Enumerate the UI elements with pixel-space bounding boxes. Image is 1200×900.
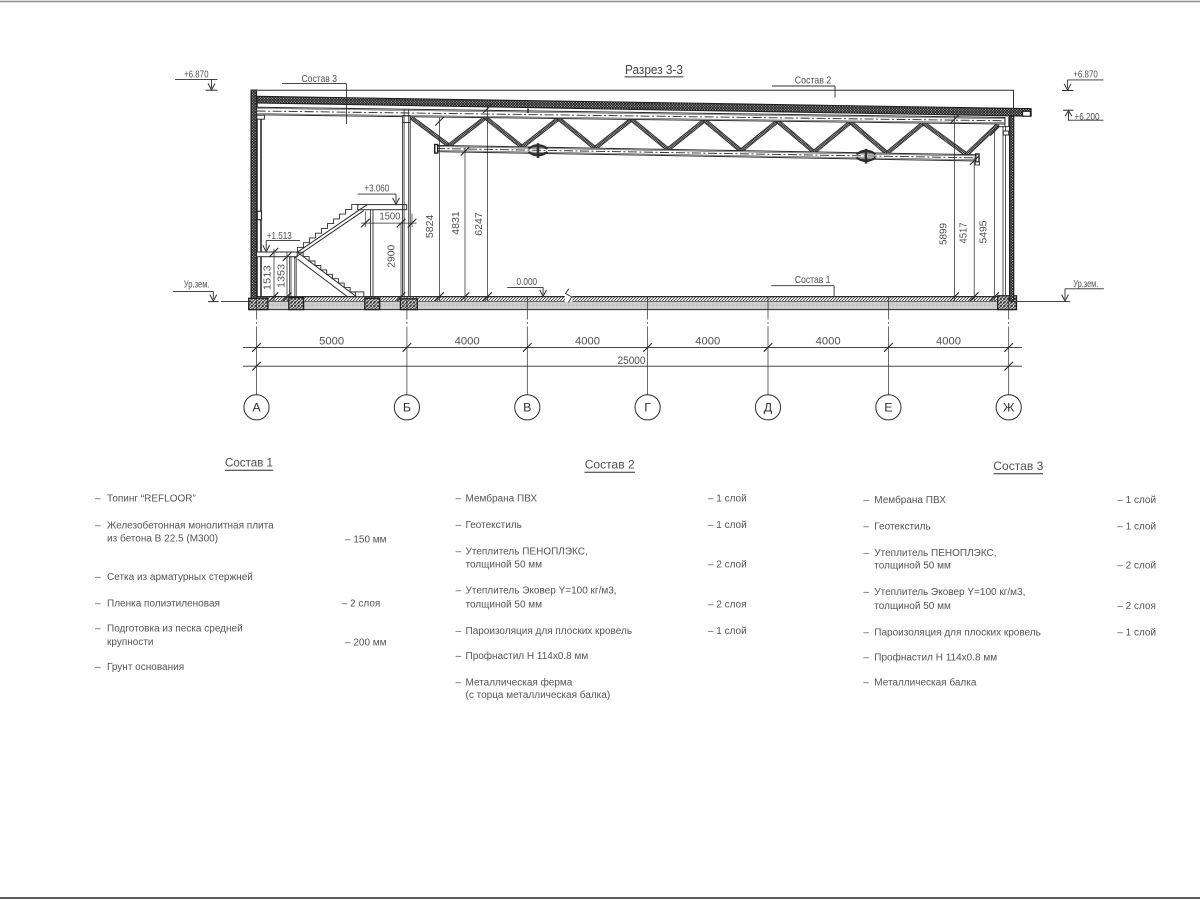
svg-text:Утеплитель Эковер Y=100 кг/м3,: Утеплитель Эковер Y=100 кг/м3, (874, 587, 1025, 598)
svg-text:Состав 1: Состав 1 (225, 456, 273, 470)
svg-text:Подготовка из песка средней: Подготовка из песка средней (107, 624, 243, 635)
svg-text:2900: 2900 (386, 245, 398, 268)
svg-text:–: – (456, 678, 462, 689)
svg-text:Железобетонная монолитная пли: Железобетонная монолитная плита (107, 520, 274, 532)
svg-text:Д: Д (764, 401, 773, 415)
svg-text:– 1 слой: – 1 слой (1117, 495, 1156, 506)
svg-text:5899: 5899 (938, 223, 950, 245)
svg-text:–: – (456, 651, 462, 662)
svg-text:Состав 2: Состав 2 (795, 76, 832, 87)
svg-text:Ур.зем.: Ур.зем. (184, 279, 210, 290)
svg-text:Металлическая ферма: Металлическая ферма (466, 677, 573, 689)
svg-text:–: – (863, 653, 869, 664)
svg-text:Пароизоляция для плоских крове: Пароизоляция для плоских кровель (874, 628, 1041, 639)
svg-text:– 2 слоя: – 2 слоя (1117, 601, 1156, 612)
svg-text:4000: 4000 (695, 335, 720, 347)
svg-text:Грунт основания: Грунт основания (107, 662, 184, 673)
svg-text:– 2 слой: – 2 слой (708, 560, 747, 571)
svg-text:0.000: 0.000 (517, 277, 538, 288)
svg-text:(с торца металлическая балка): (с торца металлическая балка) (466, 689, 611, 701)
svg-text:1500: 1500 (379, 211, 400, 223)
svg-text:–: – (456, 494, 462, 505)
svg-text:6247: 6247 (473, 212, 485, 236)
svg-text:Геотекстиль: Геотекстиль (874, 522, 930, 533)
svg-text:Металлическая балка: Металлическая балка (874, 677, 977, 689)
svg-text:толщиной 50 мм: толщиной 50 мм (466, 600, 543, 611)
svg-text:25000: 25000 (618, 355, 646, 367)
svg-text:Сетка из арматурных стержней: Сетка из арматурных стержней (107, 572, 253, 583)
svg-text:–: – (95, 662, 101, 673)
svg-text:–: – (456, 520, 462, 531)
svg-text:5824: 5824 (424, 214, 436, 238)
svg-text:–: – (456, 547, 462, 558)
svg-text:толщиной 50 мм: толщиной 50 мм (874, 601, 951, 612)
svg-text:–: – (863, 587, 869, 598)
svg-text:Ур.зем.: Ур.зем. (1073, 279, 1098, 290)
svg-text:–: – (863, 522, 869, 533)
svg-text:толщиной 50 мм: толщиной 50 мм (466, 560, 543, 571)
svg-text:Ж: Ж (1003, 401, 1015, 415)
svg-text:Разрез 3-3: Разрез 3-3 (625, 63, 683, 77)
svg-text:Пленка полиэтиленовая: Пленка полиэтиленовая (107, 599, 220, 610)
svg-text:– 200 мм: – 200 мм (345, 638, 387, 649)
svg-text:+3.060: +3.060 (365, 183, 390, 194)
svg-text:Профнастил Н 114х0.8 мм: Профнастил Н 114х0.8 мм (466, 650, 589, 662)
svg-text:Профнастил Н 114х0.8 мм: Профнастил Н 114х0.8 мм (874, 652, 997, 664)
svg-text:Состав 1: Состав 1 (795, 275, 831, 286)
svg-text:Мембрана ПВХ: Мембрана ПВХ (466, 493, 538, 505)
svg-text:Утеплитель ПЕНОПЛЭКС,: Утеплитель ПЕНОПЛЭКС, (466, 547, 588, 558)
svg-text:Г: Г (644, 401, 651, 415)
svg-text:– 150 мм: – 150 мм (345, 535, 387, 546)
svg-text:– 2 слоя: – 2 слоя (342, 599, 381, 610)
svg-text:А: А (252, 401, 261, 415)
svg-text:–: – (863, 548, 869, 559)
svg-text:1513: 1513 (261, 265, 273, 290)
svg-text:Утеплитель ПЕНОПЛЭКС,: Утеплитель ПЕНОПЛЭКС, (874, 548, 996, 559)
svg-text:–: – (95, 624, 101, 635)
svg-text:– 1 слой: – 1 слой (1117, 628, 1156, 639)
svg-text:–: – (456, 626, 462, 637)
svg-text:Топинг “REFLOOR”: Топинг “REFLOOR” (107, 494, 196, 505)
svg-text:–: – (95, 494, 101, 505)
svg-text:Мембрана ПВХ: Мембрана ПВХ (874, 494, 946, 506)
svg-text:В: В (523, 401, 531, 415)
svg-text:4831: 4831 (450, 211, 462, 235)
svg-text:–: – (95, 521, 101, 532)
svg-text:крупности: крупности (107, 637, 154, 648)
svg-text:– 1 слой: – 1 слой (708, 626, 747, 637)
svg-text:– 2 слой: – 2 слой (1117, 561, 1156, 572)
svg-text:4000: 4000 (936, 335, 961, 347)
svg-text:Состав 3: Состав 3 (993, 459, 1043, 473)
svg-text:4000: 4000 (455, 335, 480, 347)
svg-text:толщиной 50 мм: толщиной 50 мм (874, 561, 951, 572)
svg-text:Е: Е (884, 401, 892, 415)
svg-text:– 1 слой: – 1 слой (708, 494, 747, 505)
svg-text:–: – (95, 572, 101, 583)
svg-text:Б: Б (403, 401, 411, 415)
svg-text:из бетона В 22.5 (М300): из бетона В 22.5 (М300) (107, 533, 218, 545)
svg-text:+6.200: +6.200 (1075, 112, 1100, 123)
svg-text:–: – (95, 599, 101, 610)
svg-text:5495: 5495 (978, 220, 990, 243)
svg-text:Утеплитель Эковер Y=100 кг/м3,: Утеплитель Эковер Y=100 кг/м3, (466, 586, 617, 597)
svg-text:+6.870: +6.870 (1073, 70, 1098, 81)
svg-text:4000: 4000 (575, 335, 600, 347)
svg-text:– 1 слой: – 1 слой (708, 520, 747, 531)
svg-text:Геотекстиль: Геотекстиль (466, 520, 522, 531)
svg-text:–: – (863, 628, 869, 639)
svg-text:–: – (863, 495, 869, 506)
svg-text:– 1 слой: – 1 слой (1117, 522, 1156, 533)
svg-text:+6.870: +6.870 (184, 70, 209, 81)
svg-text:–: – (456, 586, 462, 597)
svg-text:Состав 2: Состав 2 (585, 458, 635, 472)
svg-text:4517: 4517 (958, 222, 970, 243)
svg-text:Пароизоляция для плоских крове: Пароизоляция для плоских кровель (466, 626, 633, 637)
svg-text:–: – (863, 678, 869, 689)
svg-text:5000: 5000 (319, 335, 344, 347)
svg-text:4000: 4000 (816, 335, 841, 347)
svg-text:– 2 слоя: – 2 слоя (708, 600, 747, 611)
svg-text:1353: 1353 (275, 264, 287, 288)
